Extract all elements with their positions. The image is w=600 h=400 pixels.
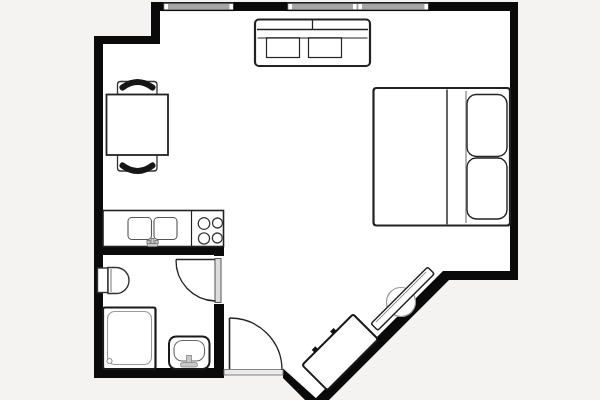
dining-table (107, 95, 169, 156)
kitchen-sink-left (128, 218, 152, 240)
entry-threshold (224, 370, 283, 376)
floor-plan-image (0, 0, 600, 400)
floor-plan-svg (0, 0, 600, 400)
bathroom-door-closed-leaf (215, 259, 221, 303)
window-band-right (287, 3, 429, 11)
wall-bath-right-lower (214, 304, 224, 368)
wall-bath-right-upper (214, 246, 224, 256)
wall-step-horizontal (94, 36, 160, 44)
stove-burner-4 (212, 233, 222, 243)
wall-bottom-right (443, 271, 518, 280)
wall-right (510, 2, 518, 280)
pillow-top (467, 95, 507, 157)
wall-kitchen-bath-divider (94, 246, 223, 255)
windows (163, 3, 429, 11)
double-bed (374, 88, 511, 226)
sofa (255, 20, 370, 67)
wall-top-b (234, 2, 287, 11)
shower-drain (107, 358, 112, 363)
kitchen-sink-right (154, 218, 177, 240)
kitchen (103, 211, 224, 247)
pillow-bottom (467, 158, 507, 219)
sofa-cushion-right (309, 38, 342, 58)
wall-left (94, 36, 103, 378)
shower-tray (108, 312, 152, 365)
window-band-left (163, 3, 234, 11)
stove-burner-3 (198, 233, 209, 244)
stove-burner-1 (198, 218, 210, 230)
wall-top-c (429, 2, 518, 11)
stove-burner-2 (213, 218, 223, 228)
sofa-cushion-left (267, 38, 300, 58)
toilet-tank (98, 268, 109, 293)
